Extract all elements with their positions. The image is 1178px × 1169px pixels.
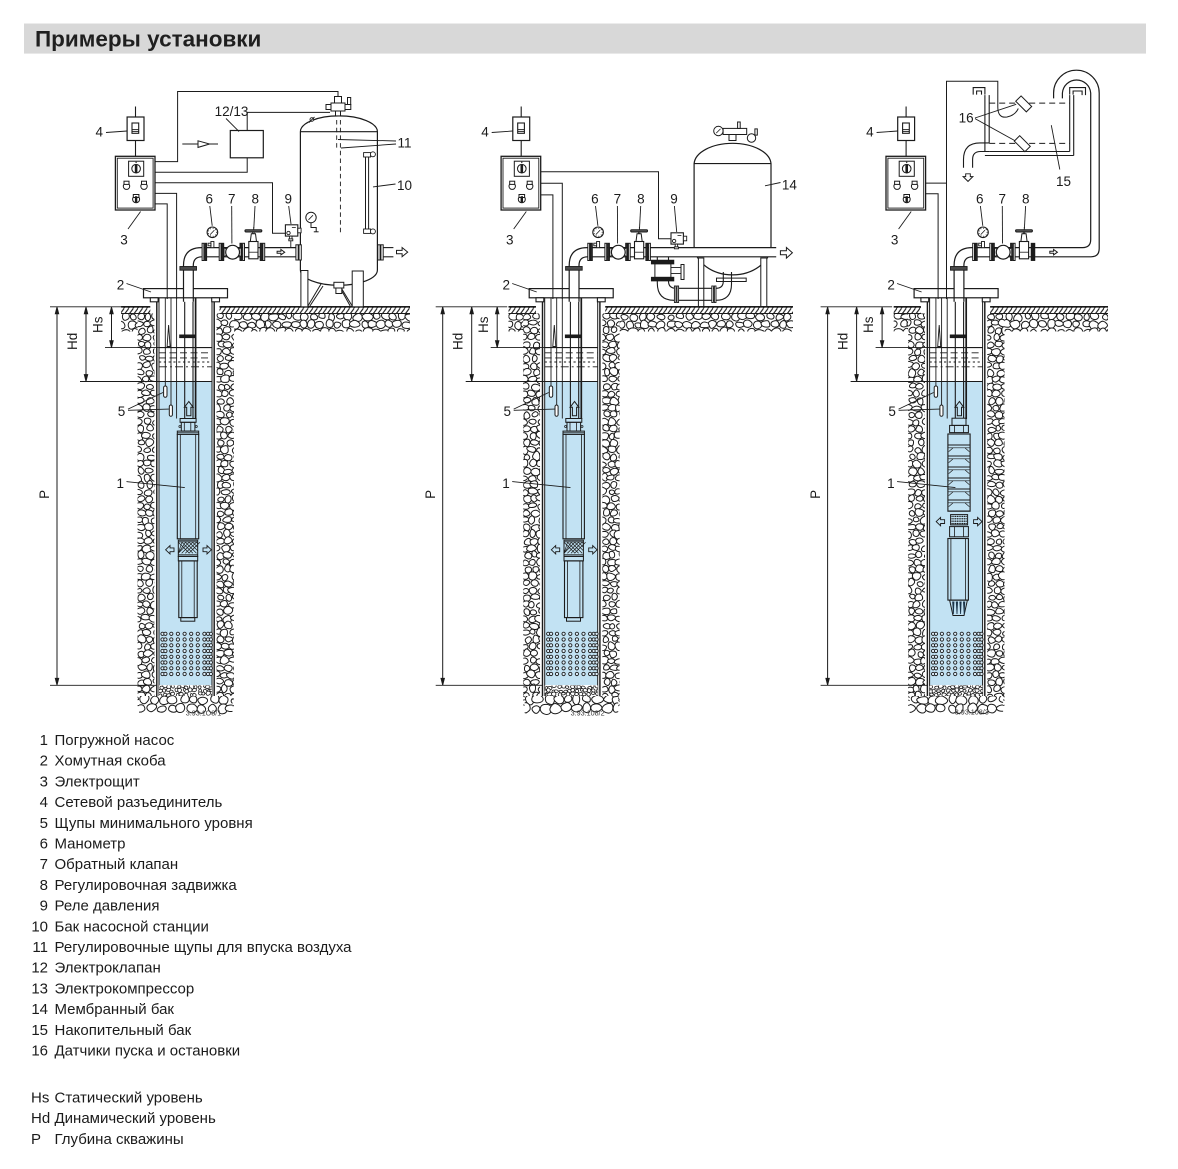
svg-text:7: 7 [999, 192, 1007, 207]
svg-text:Hs: Hs [31, 1090, 49, 1107]
svg-text:1: 1 [40, 732, 48, 749]
svg-text:Глубина скважины: Глубина скважины [55, 1131, 184, 1148]
svg-text:Обратный клапан: Обратный клапан [55, 856, 179, 873]
svg-text:9: 9 [40, 898, 48, 915]
svg-text:Примеры установки: Примеры установки [35, 27, 261, 52]
svg-text:P: P [808, 490, 823, 499]
svg-text:4: 4 [481, 125, 489, 140]
svg-text:Сетевой разъединитель: Сетевой разъединитель [55, 794, 223, 811]
svg-text:Hs: Hs [476, 316, 491, 333]
svg-text:8: 8 [251, 192, 259, 207]
svg-text:4: 4 [866, 125, 874, 140]
svg-text:3: 3 [40, 773, 48, 790]
svg-text:Мембранный бак: Мембранный бак [55, 1001, 175, 1018]
svg-text:13: 13 [31, 980, 48, 997]
svg-text:16: 16 [959, 111, 974, 126]
svg-text:Щупы минимального уровня: Щупы минимального уровня [55, 815, 253, 832]
svg-text:11: 11 [32, 939, 48, 956]
svg-text:6: 6 [205, 192, 213, 207]
svg-text:3: 3 [891, 233, 899, 248]
svg-text:Hd: Hd [451, 333, 466, 350]
svg-text:P: P [37, 490, 52, 499]
svg-text:Хомутная скоба: Хомутная скоба [55, 753, 167, 770]
svg-text:Погружной насос: Погружной насос [55, 732, 175, 749]
svg-text:Бак насосной станции: Бак насосной станции [55, 918, 209, 935]
svg-text:P: P [31, 1131, 41, 1148]
svg-text:5: 5 [888, 404, 896, 419]
svg-text:3: 3 [506, 233, 514, 248]
svg-text:9: 9 [285, 192, 293, 207]
svg-text:10: 10 [397, 178, 412, 193]
svg-text:5: 5 [118, 404, 126, 419]
svg-text:Hd: Hd [31, 1110, 50, 1127]
svg-text:Статический уровень: Статический уровень [55, 1090, 203, 1107]
svg-text:Датчики пуска и остановки: Датчики пуска и остановки [55, 1043, 241, 1060]
svg-text:12/13: 12/13 [215, 104, 249, 119]
svg-text:1: 1 [502, 476, 510, 491]
svg-text:Электрощит: Электрощит [55, 773, 140, 790]
svg-text:4: 4 [96, 125, 104, 140]
svg-text:3.93.108/3: 3.93.108/3 [955, 708, 989, 717]
svg-text:11: 11 [397, 136, 411, 151]
svg-text:1: 1 [887, 476, 895, 491]
svg-text:7: 7 [40, 856, 48, 873]
svg-text:2: 2 [40, 753, 48, 770]
svg-text:4: 4 [40, 794, 48, 811]
svg-text:3.93.108/2: 3.93.108/2 [571, 709, 605, 718]
svg-text:3.93.1О8/1: 3.93.1О8/1 [186, 709, 222, 718]
svg-text:16: 16 [31, 1043, 48, 1060]
svg-text:5: 5 [503, 404, 511, 419]
svg-text:Динамический уровень: Динамический уровень [55, 1110, 216, 1127]
svg-text:7: 7 [614, 192, 622, 207]
svg-text:Регулировочные щупы для впуска: Регулировочные щупы для впуска воздуха [55, 939, 353, 956]
svg-text:5: 5 [40, 815, 48, 832]
svg-text:7: 7 [228, 192, 236, 207]
svg-text:Манометр: Манометр [55, 836, 126, 853]
svg-text:Электрокомпрессор: Электрокомпрессор [55, 980, 195, 997]
svg-text:Электроклапан: Электроклапан [55, 960, 161, 977]
svg-text:8: 8 [40, 877, 48, 894]
svg-text:8: 8 [1022, 192, 1030, 207]
svg-text:10: 10 [31, 918, 48, 935]
svg-text:6: 6 [40, 836, 48, 853]
svg-text:14: 14 [782, 178, 798, 193]
svg-text:Hs: Hs [861, 316, 876, 333]
svg-text:P: P [423, 490, 438, 499]
svg-text:2: 2 [502, 278, 510, 293]
svg-text:Hd: Hd [65, 333, 80, 350]
svg-text:Hs: Hs [91, 316, 106, 333]
svg-text:14: 14 [31, 1001, 48, 1018]
svg-text:Реле давления: Реле давления [55, 898, 160, 915]
svg-text:Накопительный бак: Накопительный бак [55, 1022, 192, 1039]
svg-text:9: 9 [670, 192, 678, 207]
svg-text:1: 1 [117, 476, 125, 491]
svg-text:2: 2 [887, 278, 895, 293]
svg-text:15: 15 [1056, 174, 1071, 189]
svg-text:6: 6 [976, 192, 984, 207]
svg-text:Регулировочная задвижка: Регулировочная задвижка [55, 877, 238, 894]
svg-text:2: 2 [117, 278, 125, 293]
svg-text:8: 8 [637, 192, 645, 207]
svg-text:3: 3 [120, 233, 128, 248]
svg-text:15: 15 [31, 1022, 48, 1039]
svg-text:Hd: Hd [836, 333, 851, 350]
svg-text:12: 12 [31, 960, 48, 977]
svg-text:6: 6 [591, 192, 599, 207]
